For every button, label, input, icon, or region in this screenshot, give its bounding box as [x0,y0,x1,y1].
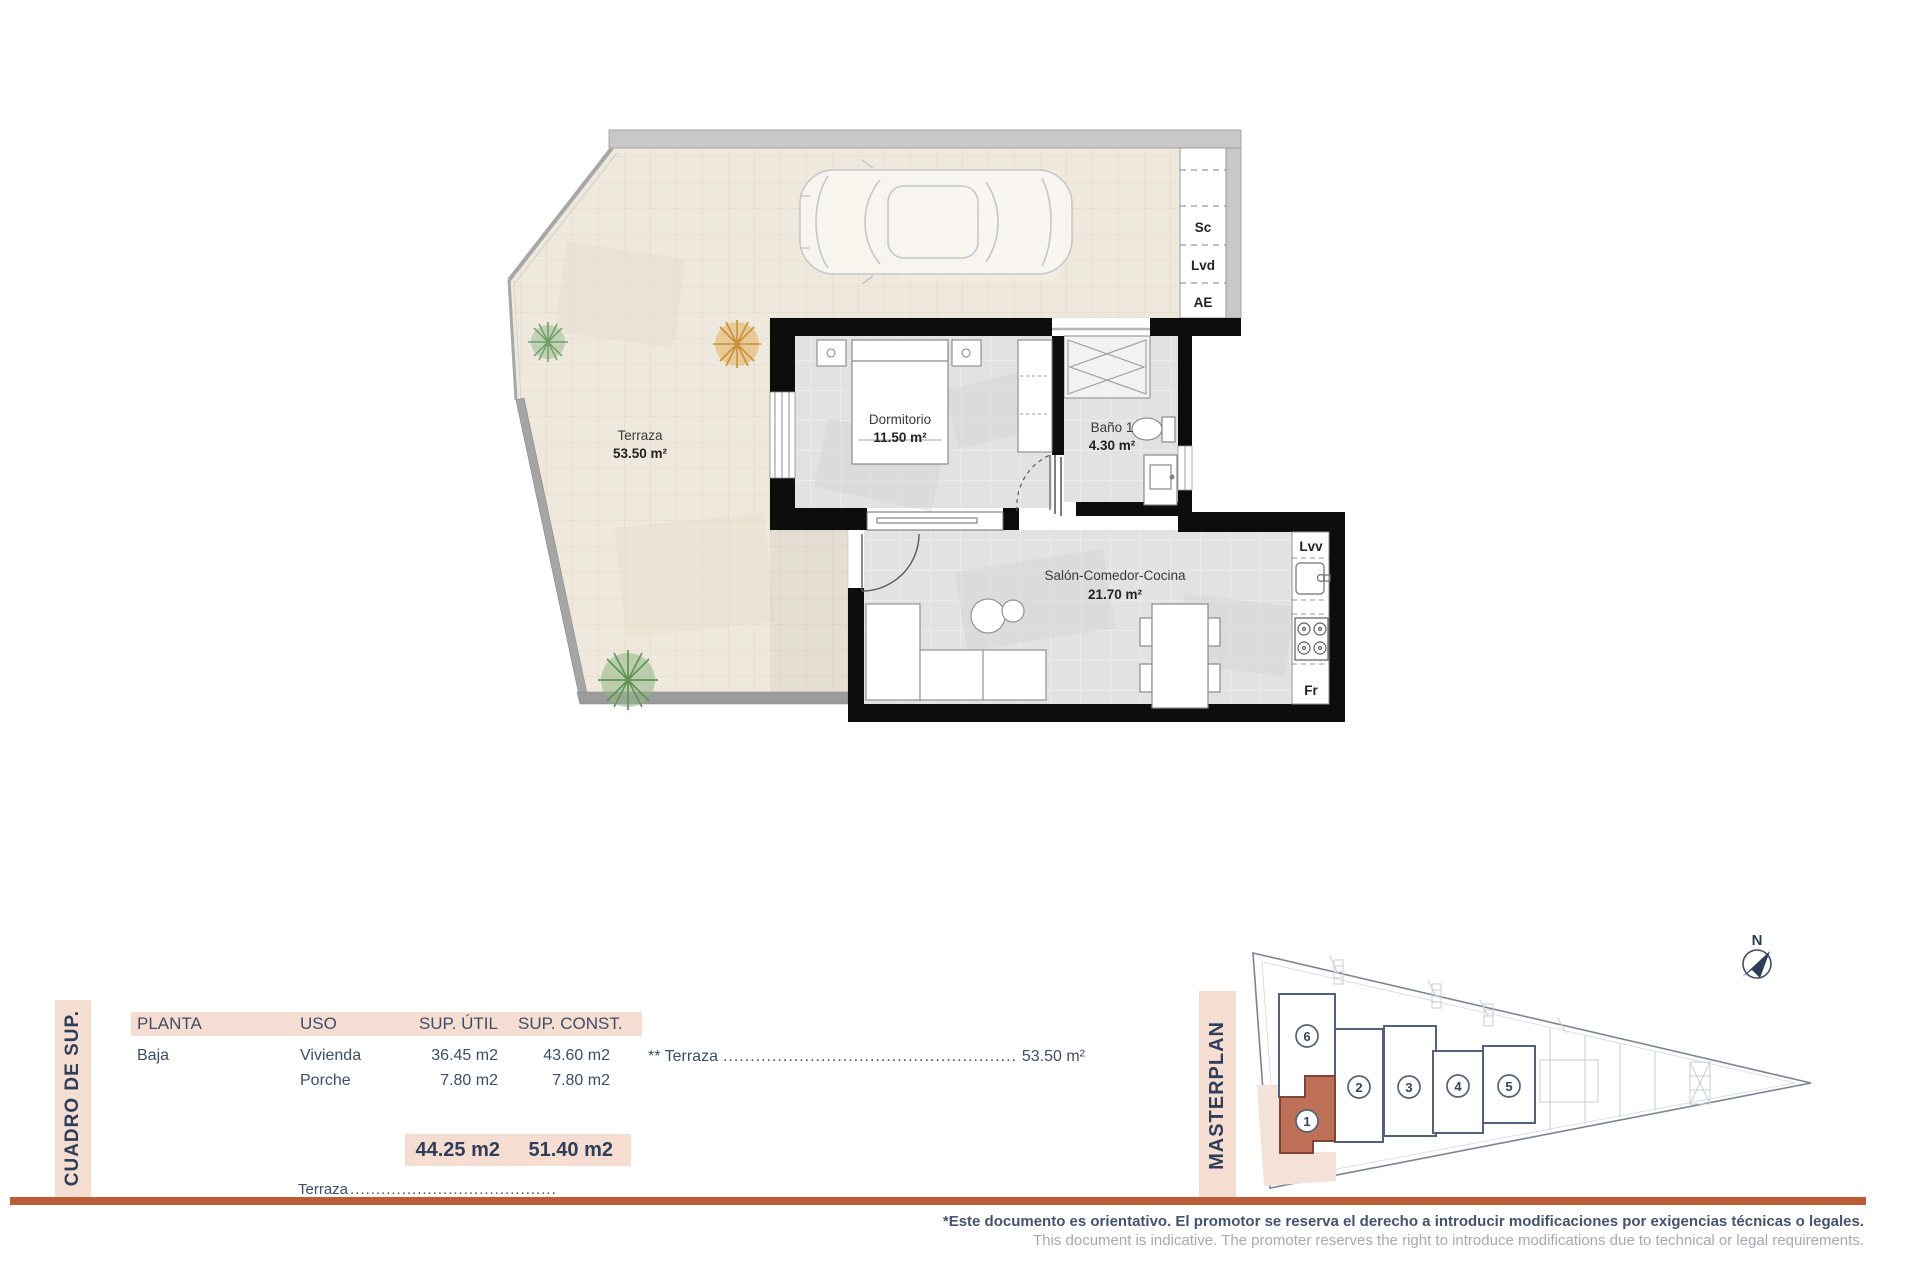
header-sup-util: SUP. ÚTIL [398,1014,498,1034]
terrace-note-dots: ........................................… [723,1048,1017,1066]
masterplan-drawing: 6 1 2 3 4 5 N [1253,932,1811,1188]
masterplan-side-panel: MASTERPLAN [1199,991,1236,1199]
plant-large-green [598,650,658,710]
unit-5-number: 5 [1505,1079,1512,1094]
terrace-name: Terraza [617,428,663,443]
bedroom-sliding-door [867,512,1003,530]
header-sup-const: SUP. CONST. [518,1014,623,1034]
floor-plan: Sc Lvd AE [509,130,1345,722]
dining-set [1140,604,1220,708]
ae-label: AE [1194,295,1213,310]
north-label: N [1752,932,1763,949]
bottom-terrace-row: Terraza ................................… [298,1181,558,1198]
row-util-vivienda: 36.45 m2 [410,1047,498,1065]
disclaimer: *Este documento es orientativo. El promo… [764,1212,1864,1250]
bathroom-vanity [1144,455,1177,505]
utility-column: Sc Lvd AE [1180,148,1226,318]
row-util-porche: 7.80 m2 [410,1072,498,1090]
bathroom-pocket-door [1055,455,1061,516]
total-const: 51.40 m2 [505,1139,613,1162]
living-name: Salón-Comedor-Cocina [1044,568,1186,583]
bathroom-window [1178,446,1192,490]
bedroom-window [770,392,795,478]
terrace-note-value: 53.50 m² [1022,1048,1085,1066]
bedroom-area: 11.50 m² [873,430,927,445]
unit-4-number: 4 [1454,1079,1462,1094]
plan-sheet: Sc Lvd AE [0,0,1920,1280]
sc-label: Sc [1195,220,1212,235]
unit-6-number: 6 [1303,1029,1310,1044]
plant-orange [713,320,761,368]
row-uso-vivienda: Vivienda [300,1047,361,1065]
north-compass: N [1742,932,1771,978]
shower [1052,318,1150,398]
row-const-porche: 7.80 m2 [522,1072,610,1090]
bathroom-name: Baño 1 [1091,420,1134,435]
masterplan-title: MASTERPLAN [1206,1021,1229,1170]
lvv-label: Lvv [1299,539,1323,554]
bathroom-area: 4.30 m² [1089,438,1136,453]
row-uso-porche: Porche [300,1072,351,1090]
total-util: 44.25 m2 [390,1139,500,1162]
terrace-note-prefix: ** Terraza [648,1048,718,1066]
row-planta: Baja [137,1047,169,1065]
kitchen-column: Lvv Fr [1292,532,1330,704]
header-uso: USO [300,1014,337,1034]
lvd-label: Lvd [1191,258,1215,273]
terrace-area: 53.50 m² [613,446,668,461]
surface-table-title: CUADRO DE SUP. [62,1010,84,1186]
living-area: 21.70 m² [1088,587,1143,602]
accent-divider [10,1197,1866,1205]
disclaimer-en: This document is indicative. The promote… [764,1231,1864,1250]
unit-2-number: 2 [1355,1080,1362,1095]
fr-label: Fr [1304,683,1318,698]
terrace-note: ** Terraza .............................… [648,1048,1085,1066]
disclaimer-es: *Este documento es orientativo. El promo… [764,1212,1864,1231]
unit-1-number: 1 [1303,1114,1310,1129]
wardrobe [1018,340,1052,452]
bedroom-name: Dormitorio [869,412,931,427]
toilet [1132,417,1175,442]
plant-small-green [528,322,568,362]
surface-table-side-panel: CUADRO DE SUP. [55,1000,91,1197]
bed [852,340,948,464]
car [800,160,1072,284]
row-const-vivienda: 43.60 m2 [522,1047,610,1065]
bottom-terrace-label: Terraza [298,1181,348,1198]
bottom-terrace-dots: ........................................… [350,1181,558,1198]
header-planta: PLANTA [137,1014,202,1034]
unit-3-number: 3 [1405,1080,1412,1095]
